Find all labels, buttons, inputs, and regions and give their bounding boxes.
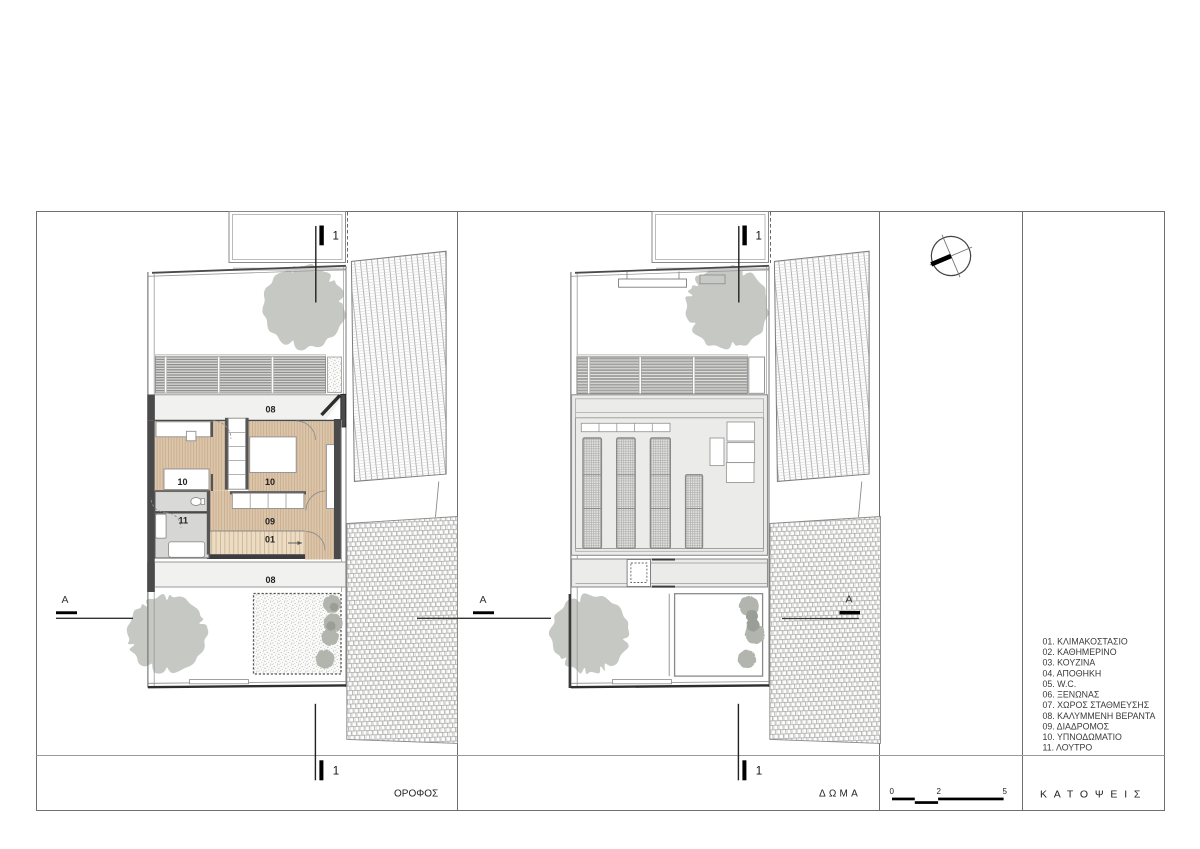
svg-text:ΟΡΟΦΟΣ: ΟΡΟΦΟΣ: [394, 789, 438, 800]
svg-text:1: 1: [333, 766, 339, 778]
svg-text:08. ΚΑΛΥΜΜΕΝΗ ΒΕΡΑΝΤΑ: 08. ΚΑΛΥΜΜΕΝΗ ΒΕΡΑΝΤΑ: [1043, 711, 1156, 721]
svg-text:ΚΑΤΟΨΕΙΣ: ΚΑΤΟΨΕΙΣ: [1040, 789, 1147, 801]
svg-text:01: 01: [265, 535, 275, 545]
svg-text:A: A: [62, 594, 69, 606]
svg-text:02. ΚΑΘΗΜΕΡΙΝΟ: 02. ΚΑΘΗΜΕΡΙΝΟ: [1043, 647, 1117, 657]
svg-text:2: 2: [937, 787, 942, 796]
svg-text:07. ΧΩΡΟΣ ΣΤΑΘΜΕΥΣΗΣ: 07. ΧΩΡΟΣ ΣΤΑΘΜΕΥΣΗΣ: [1043, 700, 1150, 710]
svg-text:10: 10: [265, 477, 275, 487]
svg-text:05. W.C.: 05. W.C.: [1043, 679, 1077, 689]
svg-text:08: 08: [266, 405, 276, 415]
svg-text:01. ΚΛΙΜΑΚΟΣΤΑΣΙΟ: 01. ΚΛΙΜΑΚΟΣΤΑΣΙΟ: [1043, 636, 1128, 646]
svg-text:10: 10: [178, 477, 188, 487]
svg-text:A: A: [846, 594, 853, 606]
svg-text:04. ΑΠΟΘΗΚΗ: 04. ΑΠΟΘΗΚΗ: [1043, 668, 1102, 678]
svg-text:10. ΥΠΝΟΔΩΜΑΤΙΟ: 10. ΥΠΝΟΔΩΜΑΤΙΟ: [1043, 732, 1123, 742]
svg-text:09: 09: [265, 517, 275, 527]
svg-text:09. ΔΙΑΔΡΟΜΟΣ: 09. ΔΙΑΔΡΟΜΟΣ: [1043, 721, 1110, 731]
svg-text:0: 0: [890, 787, 895, 796]
svg-text:08: 08: [266, 575, 276, 585]
svg-text:1: 1: [756, 231, 762, 243]
svg-text:1: 1: [333, 231, 339, 243]
svg-text:03. ΚΟΥΖΙΝΑ: 03. ΚΟΥΖΙΝΑ: [1043, 658, 1096, 668]
svg-text:1: 1: [756, 766, 762, 778]
svg-text:11: 11: [179, 516, 189, 526]
svg-text:06. ΞΕΝΩΝΑΣ: 06. ΞΕΝΩΝΑΣ: [1043, 690, 1100, 700]
svg-text:11. ΛΟΥΤΡΟ: 11. ΛΟΥΤΡΟ: [1043, 743, 1093, 753]
svg-text:5: 5: [1003, 787, 1008, 796]
svg-text:A: A: [480, 594, 487, 606]
svg-text:ΔΩΜΑ: ΔΩΜΑ: [819, 789, 861, 800]
